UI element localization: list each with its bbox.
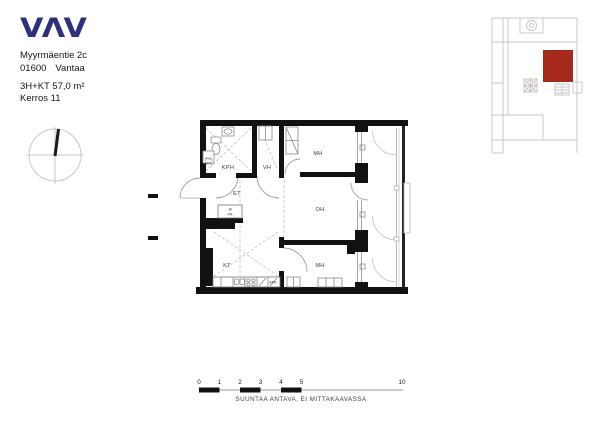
compass-icon (26, 127, 84, 184)
room-label-living-room: OH (316, 207, 325, 213)
room-label-bedroom-top: MH (313, 151, 322, 157)
compass-needle (55, 129, 59, 156)
scale-tick-10: 10 (398, 379, 406, 386)
floorplan-document-page: VΛV Myyrmäentie 2c 01600Vantaa 3H+KT 57,… (0, 0, 604, 427)
entrance-door-arc (180, 178, 200, 198)
fridge-label-line2: PA (228, 212, 233, 217)
stair-core-icon (520, 18, 543, 33)
balcony-railing (404, 183, 410, 233)
balcony-door-arc (351, 183, 368, 200)
dishwasher-label: APK (269, 280, 277, 285)
scale-tick-5: 5 (300, 379, 304, 386)
wardrobes-bedroom-bottom (287, 277, 342, 287)
toilet-tank (211, 137, 221, 143)
apartment-location-highlight (543, 50, 573, 82)
scale-tick-1: 1 (218, 379, 222, 386)
drawing-layer: KPH VH MH ET OH KT MH (PK) (PP) JK PA AP… (0, 0, 604, 427)
stairs-icon (555, 84, 569, 95)
floor-plan: KPH VH MH ET OH KT MH (PK) (PP) JK PA AP… (148, 120, 410, 294)
scale-bar-caption: SUUNTAA ANTAVA, EI MITTAKAAVASSA (235, 396, 366, 403)
scale-tick-3: 3 (259, 379, 263, 386)
scale-tick-2: 2 (238, 379, 242, 386)
kitchen-sink (235, 279, 240, 285)
room-label-closet: VH (263, 165, 271, 171)
scale-tick-0: 0 (197, 379, 201, 386)
walls (148, 120, 408, 294)
key-plan (492, 18, 582, 153)
room-label-kitchen: KT (223, 263, 231, 269)
room-label-entrance: ET (233, 191, 241, 197)
room-label-bedroom-bottom: MH (315, 263, 324, 269)
bedroom-bottom-door-arc (283, 248, 307, 272)
windows (358, 132, 366, 282)
closet-door-arc (257, 176, 279, 198)
room-label-bathroom: KPH (222, 165, 234, 171)
washer-label-line2: (PP) (205, 161, 213, 166)
scale-bar: 0 1 2 3 4 5 10 SUUNTAA ANTAVA, EI MITTAK… (197, 379, 406, 403)
bedroom-top-door-arc (285, 159, 300, 174)
scale-tick-4: 4 (279, 379, 283, 386)
elevator-icon (524, 79, 537, 92)
